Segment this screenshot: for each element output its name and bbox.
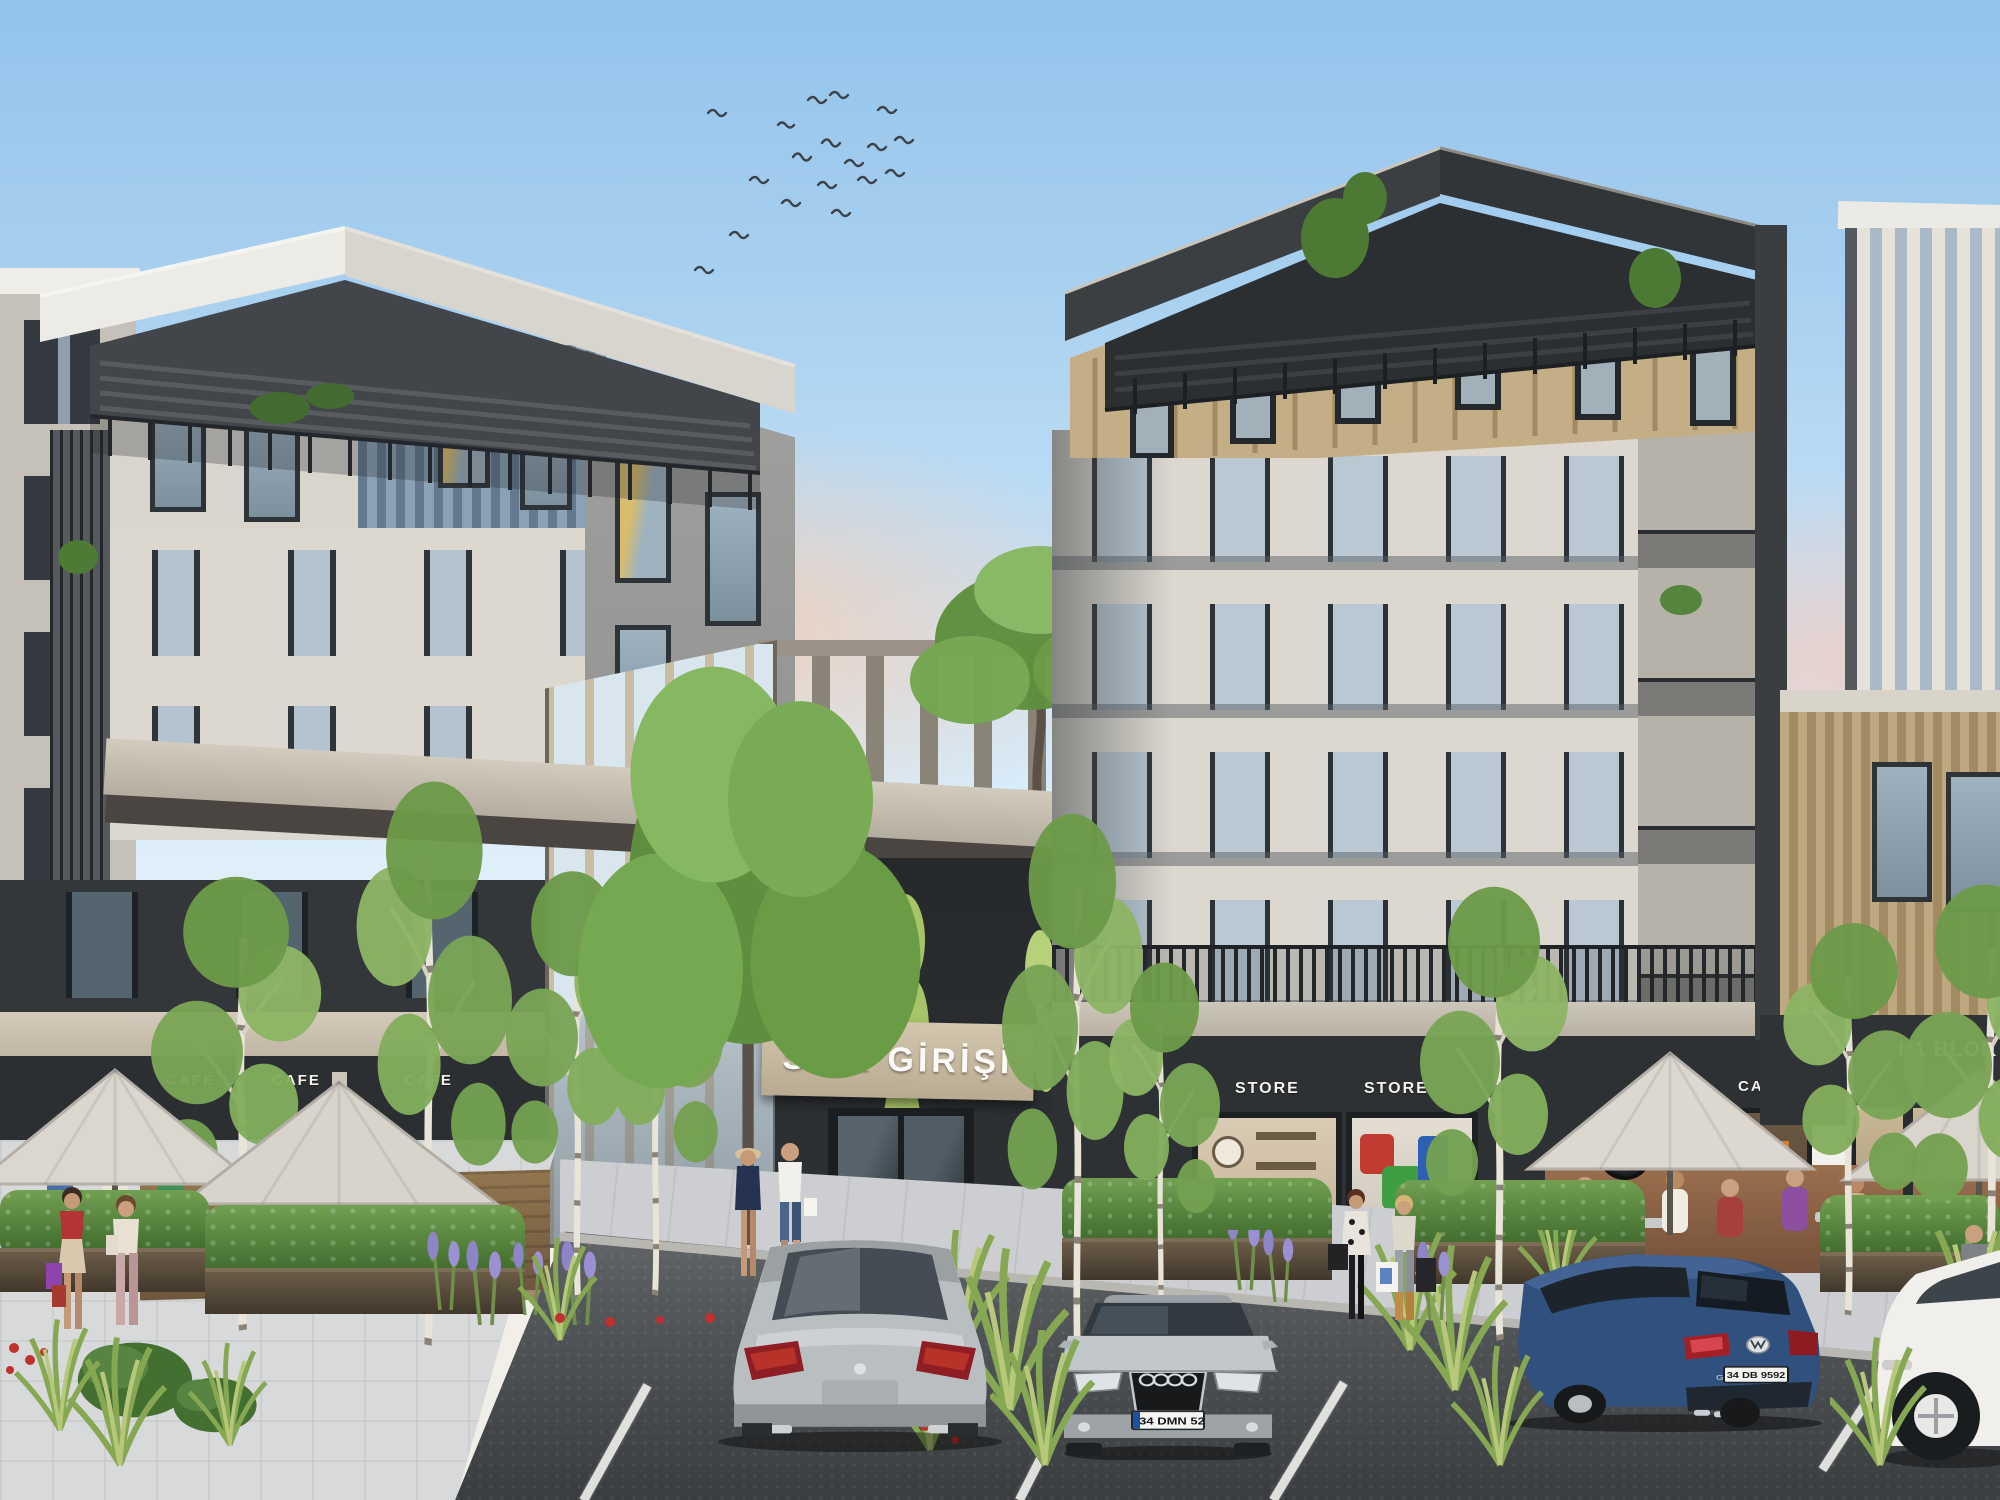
grass-tuft-front xyxy=(990,1330,1110,1470)
right-building-roof xyxy=(1035,128,1815,458)
woman-red-top xyxy=(46,1187,86,1329)
shopping-women-pair xyxy=(1318,1178,1443,1343)
woman-cream-top xyxy=(106,1195,139,1325)
grass-tuft-front xyxy=(1450,1340,1560,1470)
grass-tuft-front xyxy=(1830,1330,1940,1470)
woman-patterned-dress xyxy=(1328,1189,1371,1319)
audi-license-plate: 34 DMN 52 xyxy=(1139,1416,1205,1427)
architectural-render-scene: CAFE CAFE CAFE SİTE GİRİŞİ xyxy=(0,0,2000,1500)
vw-logo-icon xyxy=(1747,1337,1769,1353)
left-building-roof xyxy=(30,218,810,518)
peugeot-logo-icon xyxy=(854,1363,866,1374)
silver-sedan-rear xyxy=(710,1238,1010,1453)
woman-blonde-shopper xyxy=(1376,1195,1436,1320)
walking-women-pair xyxy=(30,1175,170,1350)
golf-license-plate: 34 DB 9592 xyxy=(1727,1371,1786,1380)
